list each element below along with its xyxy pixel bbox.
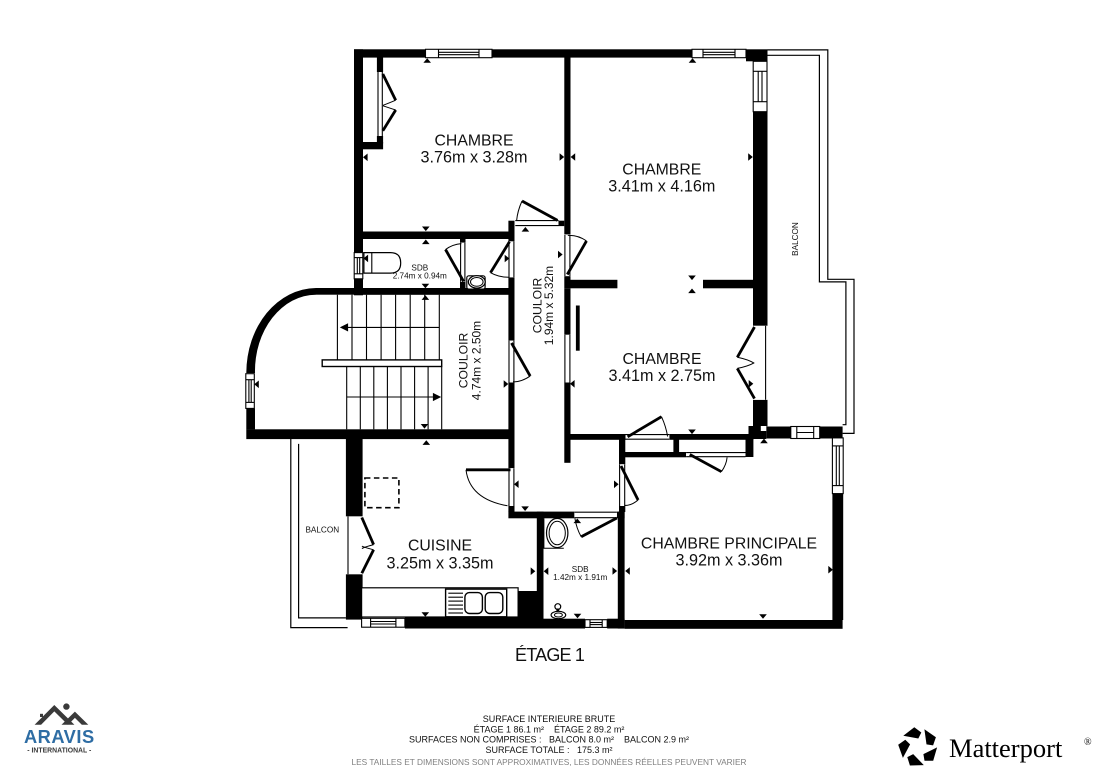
svg-text:2.74m x 0.94m: 2.74m x 0.94m [393, 271, 447, 280]
svg-text:CHAMBRE PRINCIPALE: CHAMBRE PRINCIPALE [641, 535, 817, 552]
svg-text:COULOIR: COULOIR [457, 333, 471, 389]
svg-text:CHAMBRE: CHAMBRE [435, 133, 514, 150]
svg-text:3.41m x 4.16m: 3.41m x 4.16m [608, 178, 715, 196]
svg-text:ARAVIS: ARAVIS [24, 726, 95, 747]
svg-text:Matterport: Matterport [949, 733, 1063, 763]
svg-text:BALCON: BALCON [305, 526, 339, 535]
svg-text:SURFACES NON COMPRISES : BAL: SURFACES NON COMPRISES : BALCON 8.0 m² B… [409, 735, 689, 745]
svg-text:®: ® [1084, 737, 1092, 748]
svg-text:- INTERNATIONAL -: - INTERNATIONAL - [27, 748, 92, 755]
svg-text:CHAMBRE: CHAMBRE [623, 351, 702, 368]
svg-text:SURFACE TOTALE : 175.3 m²: SURFACE TOTALE : 175.3 m² [485, 745, 612, 755]
svg-text:ÉTAGE 1 86.1 m² ÉTAGE 2 89.: ÉTAGE 1 86.1 m² ÉTAGE 2 89.2 m² [474, 724, 625, 734]
svg-text:3.92m x 3.36m: 3.92m x 3.36m [675, 551, 782, 569]
svg-text:4.74m x 2.50m: 4.74m x 2.50m [470, 321, 484, 400]
svg-text:LES TAILLES ET DIMENSIONS SONT: LES TAILLES ET DIMENSIONS SONT APPROXIMA… [352, 757, 747, 767]
svg-text:1.42m x 1.91m: 1.42m x 1.91m [553, 573, 607, 582]
svg-text:3.25m x 3.35m: 3.25m x 3.35m [386, 554, 493, 572]
svg-text:BALCON: BALCON [791, 222, 800, 256]
svg-text:CUISINE: CUISINE [408, 538, 472, 555]
svg-text:1.94m x 5.32m: 1.94m x 5.32m [542, 266, 556, 345]
svg-text:CHAMBRE: CHAMBRE [622, 162, 701, 179]
svg-text:3.76m x 3.28m: 3.76m x 3.28m [420, 148, 527, 166]
svg-text:SURFACE INTERIEURE BRUTE: SURFACE INTERIEURE BRUTE [483, 714, 616, 724]
svg-text:3.41m x 2.75m: 3.41m x 2.75m [608, 367, 715, 385]
svg-text:ÉTAGE 1: ÉTAGE 1 [515, 645, 585, 665]
